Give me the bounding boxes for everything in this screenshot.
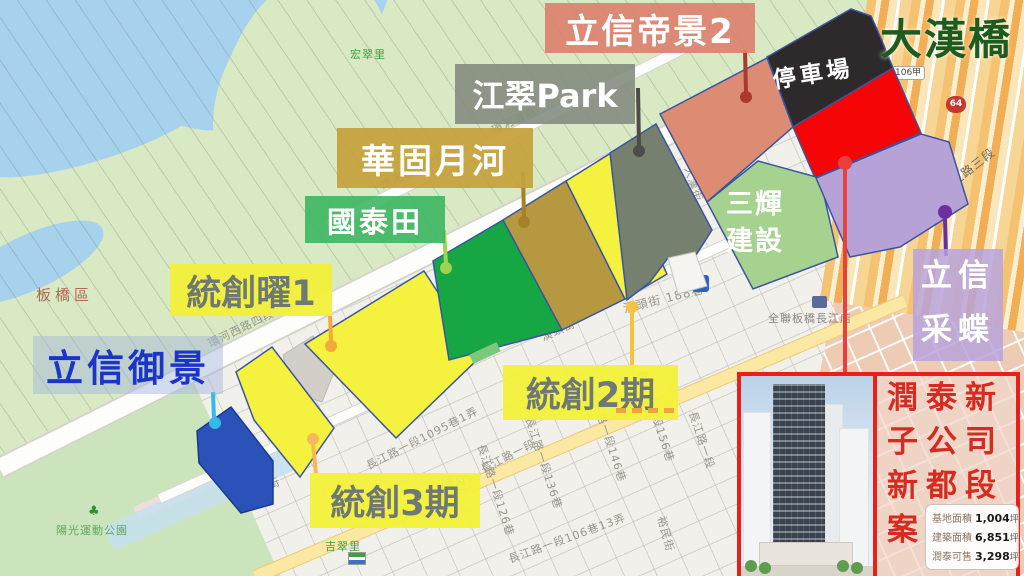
project-label-tongchuang-yao1: 統創曜1: [170, 264, 332, 316]
stat-row: 建築面積6,851坪: [932, 529, 1018, 548]
poi-label-pxmart: 全聯板橋長江店: [768, 310, 852, 326]
stat-value: 1,004: [975, 512, 1010, 525]
project-label-dijing2: 立信帝景2: [545, 3, 755, 53]
stat-label: 潤泰可售: [932, 552, 972, 563]
stat-unit: 坪: [1010, 515, 1019, 525]
route-badge-106: 106甲: [891, 66, 925, 80]
sanhui-line1: 三輝: [700, 186, 810, 223]
project-label-tongchuang-3: 統創3期: [310, 473, 480, 528]
tc2-dashed-underline: [616, 408, 674, 413]
route-shield-64-icon: 64: [946, 96, 966, 113]
parking-p-icon: P: [692, 275, 709, 292]
bridge-label-dahan: 大漢橋: [880, 6, 1012, 67]
runtai-text-line: 子公司: [877, 420, 1016, 464]
project-label-jiangcui-park: 江翠Park: [455, 64, 635, 124]
project-label-huagu-yuehe: 華固月河: [337, 128, 533, 188]
runtai-text-line: 潤泰新: [877, 376, 1016, 420]
tree-icon: [837, 560, 849, 572]
dark-tower-building: [773, 384, 825, 552]
stat-row: 基地面積1,004坪: [932, 510, 1018, 529]
stat-label: 基地面積: [932, 514, 972, 525]
tree-icon: [745, 560, 757, 572]
stat-row: 潤泰可售3,298坪: [932, 548, 1018, 567]
sanhui-line2: 建設: [700, 223, 810, 260]
store-icon: [812, 296, 827, 308]
tree-icon: [851, 562, 863, 574]
runtai-text-line: 新都段: [877, 464, 1016, 508]
neighborhood-label-hongcui: 宏翠里: [350, 46, 386, 62]
district-label-banqiao: 板橋區: [36, 284, 93, 305]
caidie-line2: 采蝶: [913, 303, 1003, 357]
annotated-map: 宏翠里 板橋區 環河西路四段 環河西路四段 環河道路 停車場 大漢街 漢頭街 1…: [0, 0, 1024, 576]
project-label-cathay-tian: 國泰田: [305, 196, 445, 243]
area-stats-box: 基地面積1,004坪 建築面積6,851坪 潤泰可售3,298坪: [925, 504, 1019, 570]
project-label-sanhui: 三輝 建設: [700, 186, 810, 260]
building-render-image: [737, 372, 877, 576]
stat-unit: 坪: [1010, 534, 1019, 544]
tree-icon: ♣: [88, 504, 100, 519]
stat-value: 6,851: [975, 531, 1010, 544]
project-label-lixin-caidie: 立信 采蝶: [913, 249, 1003, 361]
stat-label: 建築面積: [932, 533, 972, 544]
flag-icon: [348, 552, 366, 565]
stat-value: 3,298: [975, 550, 1010, 563]
park-label-sunshine: 陽光運動公園: [56, 522, 128, 538]
stat-unit: 坪: [1010, 553, 1019, 563]
tree-icon: [759, 562, 771, 574]
caidie-line1: 立信: [913, 249, 1003, 303]
project-label-lixin-yujing: 立信御景: [33, 336, 223, 394]
